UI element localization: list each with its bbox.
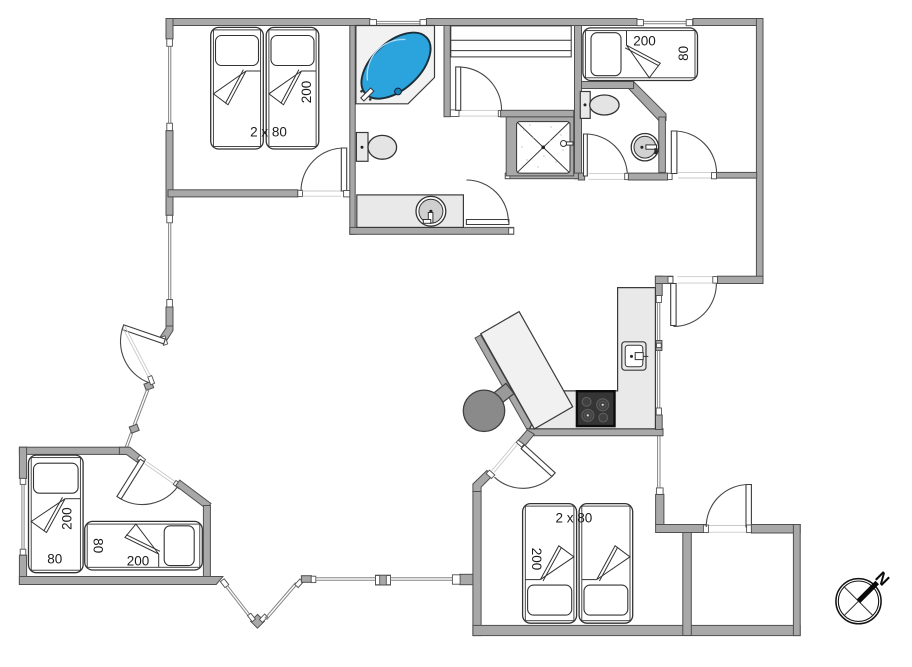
svg-text:2 x 80: 2 x 80 [250,125,287,140]
svg-text:200: 200 [529,548,544,571]
svg-text:2 x 80: 2 x 80 [556,511,593,526]
svg-text:80: 80 [47,552,62,567]
svg-text:80: 80 [90,538,105,553]
svg-text:200: 200 [127,554,150,569]
svg-text:80: 80 [676,46,691,61]
svg-text:200: 200 [633,34,656,49]
svg-text:200: 200 [299,81,314,104]
svg-text:200: 200 [60,507,75,530]
